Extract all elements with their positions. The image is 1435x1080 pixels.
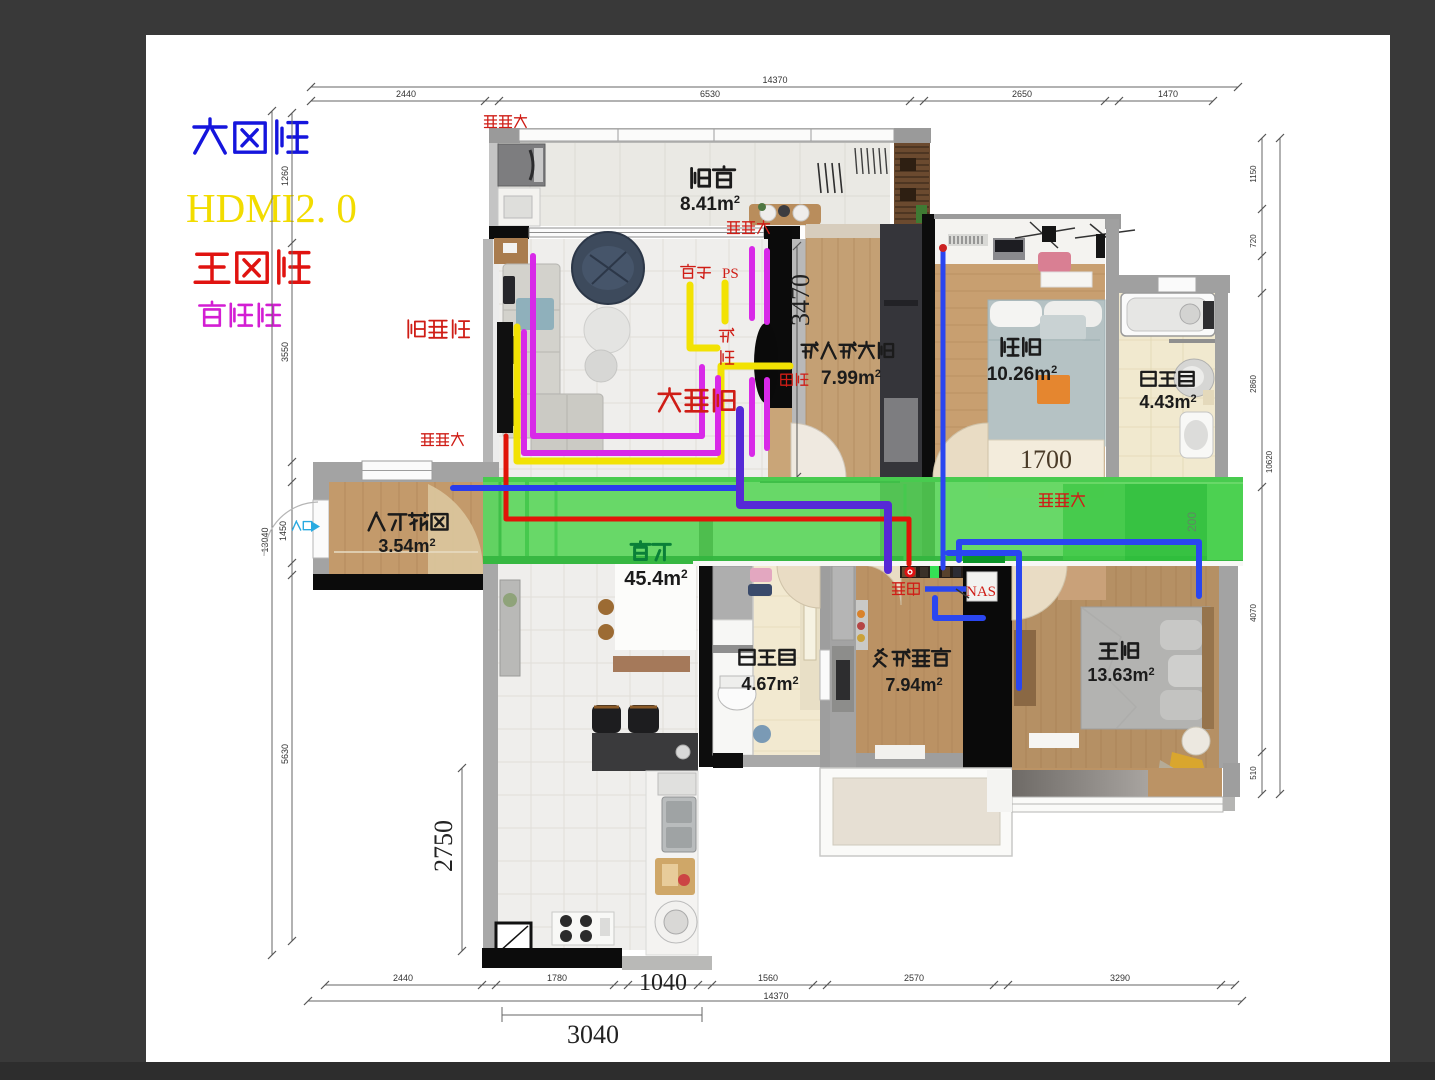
svg-text:1450: 1450 [278,521,288,541]
svg-text:45.4m2: 45.4m2 [624,567,688,590]
svg-text:2440: 2440 [396,89,416,99]
svg-text:13.63m2: 13.63m2 [1087,665,1154,685]
svg-text:7.99m2: 7.99m2 [821,368,881,389]
svg-text:1780: 1780 [547,973,567,983]
svg-text:10620: 10620 [1265,450,1274,473]
svg-text:2860: 2860 [1249,375,1258,393]
svg-text:3470: 3470 [786,274,815,326]
svg-text:5630: 5630 [280,744,290,764]
svg-text:720: 720 [1249,234,1258,248]
svg-text:3.54m2: 3.54m2 [378,536,435,556]
svg-text:1150: 1150 [1249,165,1258,183]
svg-text:2440: 2440 [393,973,413,983]
svg-text:510: 510 [1249,766,1258,780]
svg-text:3290: 3290 [1110,973,1130,983]
svg-text:2750: 2750 [429,820,458,872]
svg-text:1260: 1260 [280,166,290,186]
svg-text:1700: 1700 [1020,445,1072,474]
svg-text:200: 200 [1185,512,1199,532]
svg-text:PS: PS [722,266,739,282]
svg-text:7.94m2: 7.94m2 [885,675,942,695]
svg-text:1040: 1040 [639,970,687,996]
svg-text:14370: 14370 [763,991,788,1001]
svg-text:4070: 4070 [1249,604,1258,622]
svg-text:HDMI2. 0: HDMI2. 0 [186,185,357,231]
svg-text:2570: 2570 [904,973,924,983]
svg-text:10.26m2: 10.26m2 [987,364,1058,385]
svg-text:2650: 2650 [1012,89,1032,99]
svg-text:3550: 3550 [280,342,290,362]
svg-text:1470: 1470 [1158,89,1178,99]
svg-text:14370: 14370 [762,75,787,85]
svg-text:1560: 1560 [758,973,778,983]
svg-text:4.67m2: 4.67m2 [741,674,798,694]
svg-text:6530: 6530 [700,89,720,99]
svg-text:8.41m2: 8.41m2 [680,194,740,215]
svg-text:4.43m2: 4.43m2 [1139,392,1196,412]
svg-text:NAS: NAS [966,584,996,600]
svg-text:3040: 3040 [567,1020,619,1049]
